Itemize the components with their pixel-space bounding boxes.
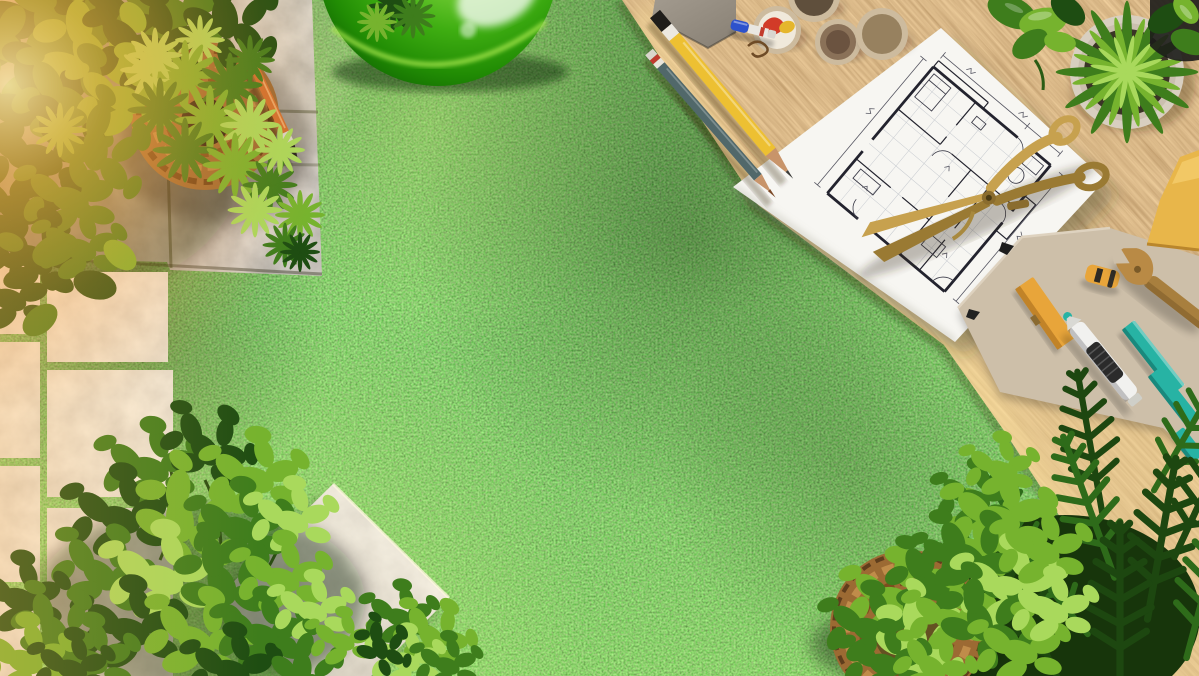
garden-flatlay-photo [0,0,1199,676]
bowl-highlight-dot [460,22,476,38]
pot-interior [862,14,902,54]
pot-soil-dark [826,30,850,54]
screenshot-root [0,0,1199,676]
